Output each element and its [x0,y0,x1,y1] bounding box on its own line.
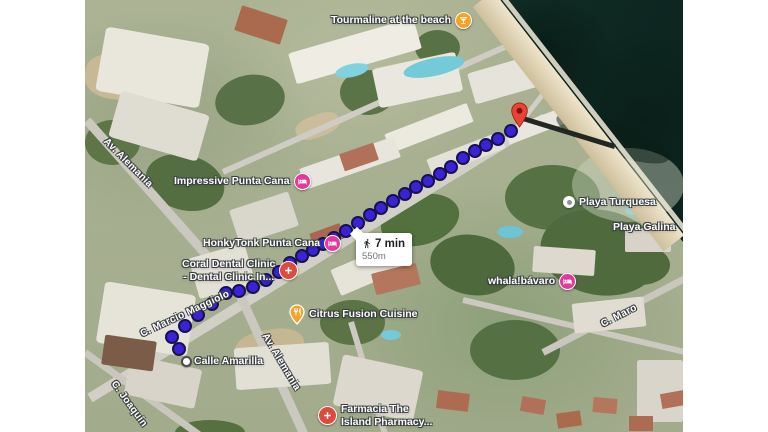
restaurant-pin-icon[interactable] [289,304,305,325]
poi-farmacia[interactable]: Farmacia TheIsland Pharmacy... [318,403,432,428]
hotel-bed-icon[interactable] [559,273,576,290]
route-distance: 550m [362,251,405,262]
walking-icon [362,237,372,250]
route-dot [232,284,246,298]
map-screenshot: Av. Alemania Av. Alemania C. Marcio Magg… [0,0,768,432]
poi-label-citrus[interactable]: Citrus Fusion Cuisine [309,308,418,321]
farmacia-line1: Farmacia The [341,403,409,415]
route-start-marker[interactable] [181,356,192,367]
route-dot [165,330,179,344]
poi-label-impressive[interactable]: Impressive Punta Cana [174,175,290,188]
poi-impressive-punta-cana[interactable]: Impressive Punta Cana [174,173,311,190]
farmacia-line2: Island Pharmacy... [341,416,432,428]
poi-label-coral-dental[interactable]: Coral Dental Clinic- Dental Clinic In... [182,258,275,283]
medical-cross-icon[interactable] [318,406,337,425]
poi-label-playa-turquesa[interactable]: Playa Turquesa [579,196,656,209]
poi-honkytonk[interactable]: HonkyTonk Punta Cana [203,235,341,252]
poi-calle-amarilla[interactable]: Calle Amarilla [194,355,263,368]
poi-playa-galina[interactable]: Playa Galina [613,221,675,234]
poi-label-farmacia[interactable]: Farmacia TheIsland Pharmacy... [341,403,432,428]
poi-whala-bavaro[interactable]: whala!bávaro [488,273,576,290]
cocktail-icon[interactable] [455,12,472,29]
poi-playa-turquesa[interactable]: Playa Turquesa [563,196,656,209]
poi-label-calle-amarilla[interactable]: Calle Amarilla [194,355,263,368]
route-dot [172,342,186,356]
coral-line1: Coral Dental Clinic [182,258,275,270]
poi-label-tourmaline[interactable]: Tourmaline at the beach [331,14,451,27]
route-path [85,0,683,432]
poi-tourmaline[interactable]: Tourmaline at the beach [331,12,472,29]
poi-label-honkytonk[interactable]: HonkyTonk Punta Cana [203,237,320,250]
medical-cross-icon[interactable] [279,261,298,280]
hotel-bed-icon[interactable] [294,173,311,190]
route-info-bubble[interactable]: 7 min 550m [356,233,412,266]
poi-label-whala[interactable]: whala!bávaro [488,275,555,288]
destination-pin-icon[interactable] [511,102,528,128]
route-dot [491,132,505,146]
poi-label-playa-galina[interactable]: Playa Galina [613,221,675,234]
route-duration: 7 min [375,238,405,250]
hotel-bed-icon[interactable] [324,235,341,252]
map-canvas[interactable]: Av. Alemania Av. Alemania C. Marcio Magg… [85,0,683,432]
coral-line2: - Dental Clinic In... [183,271,274,283]
poi-coral-dental-clinic[interactable]: Coral Dental Clinic- Dental Clinic In... [182,258,298,283]
beach-marker-icon[interactable] [563,196,575,208]
route-dot [444,160,458,174]
poi-citrus-fusion[interactable]: Citrus Fusion Cuisine [289,304,418,325]
